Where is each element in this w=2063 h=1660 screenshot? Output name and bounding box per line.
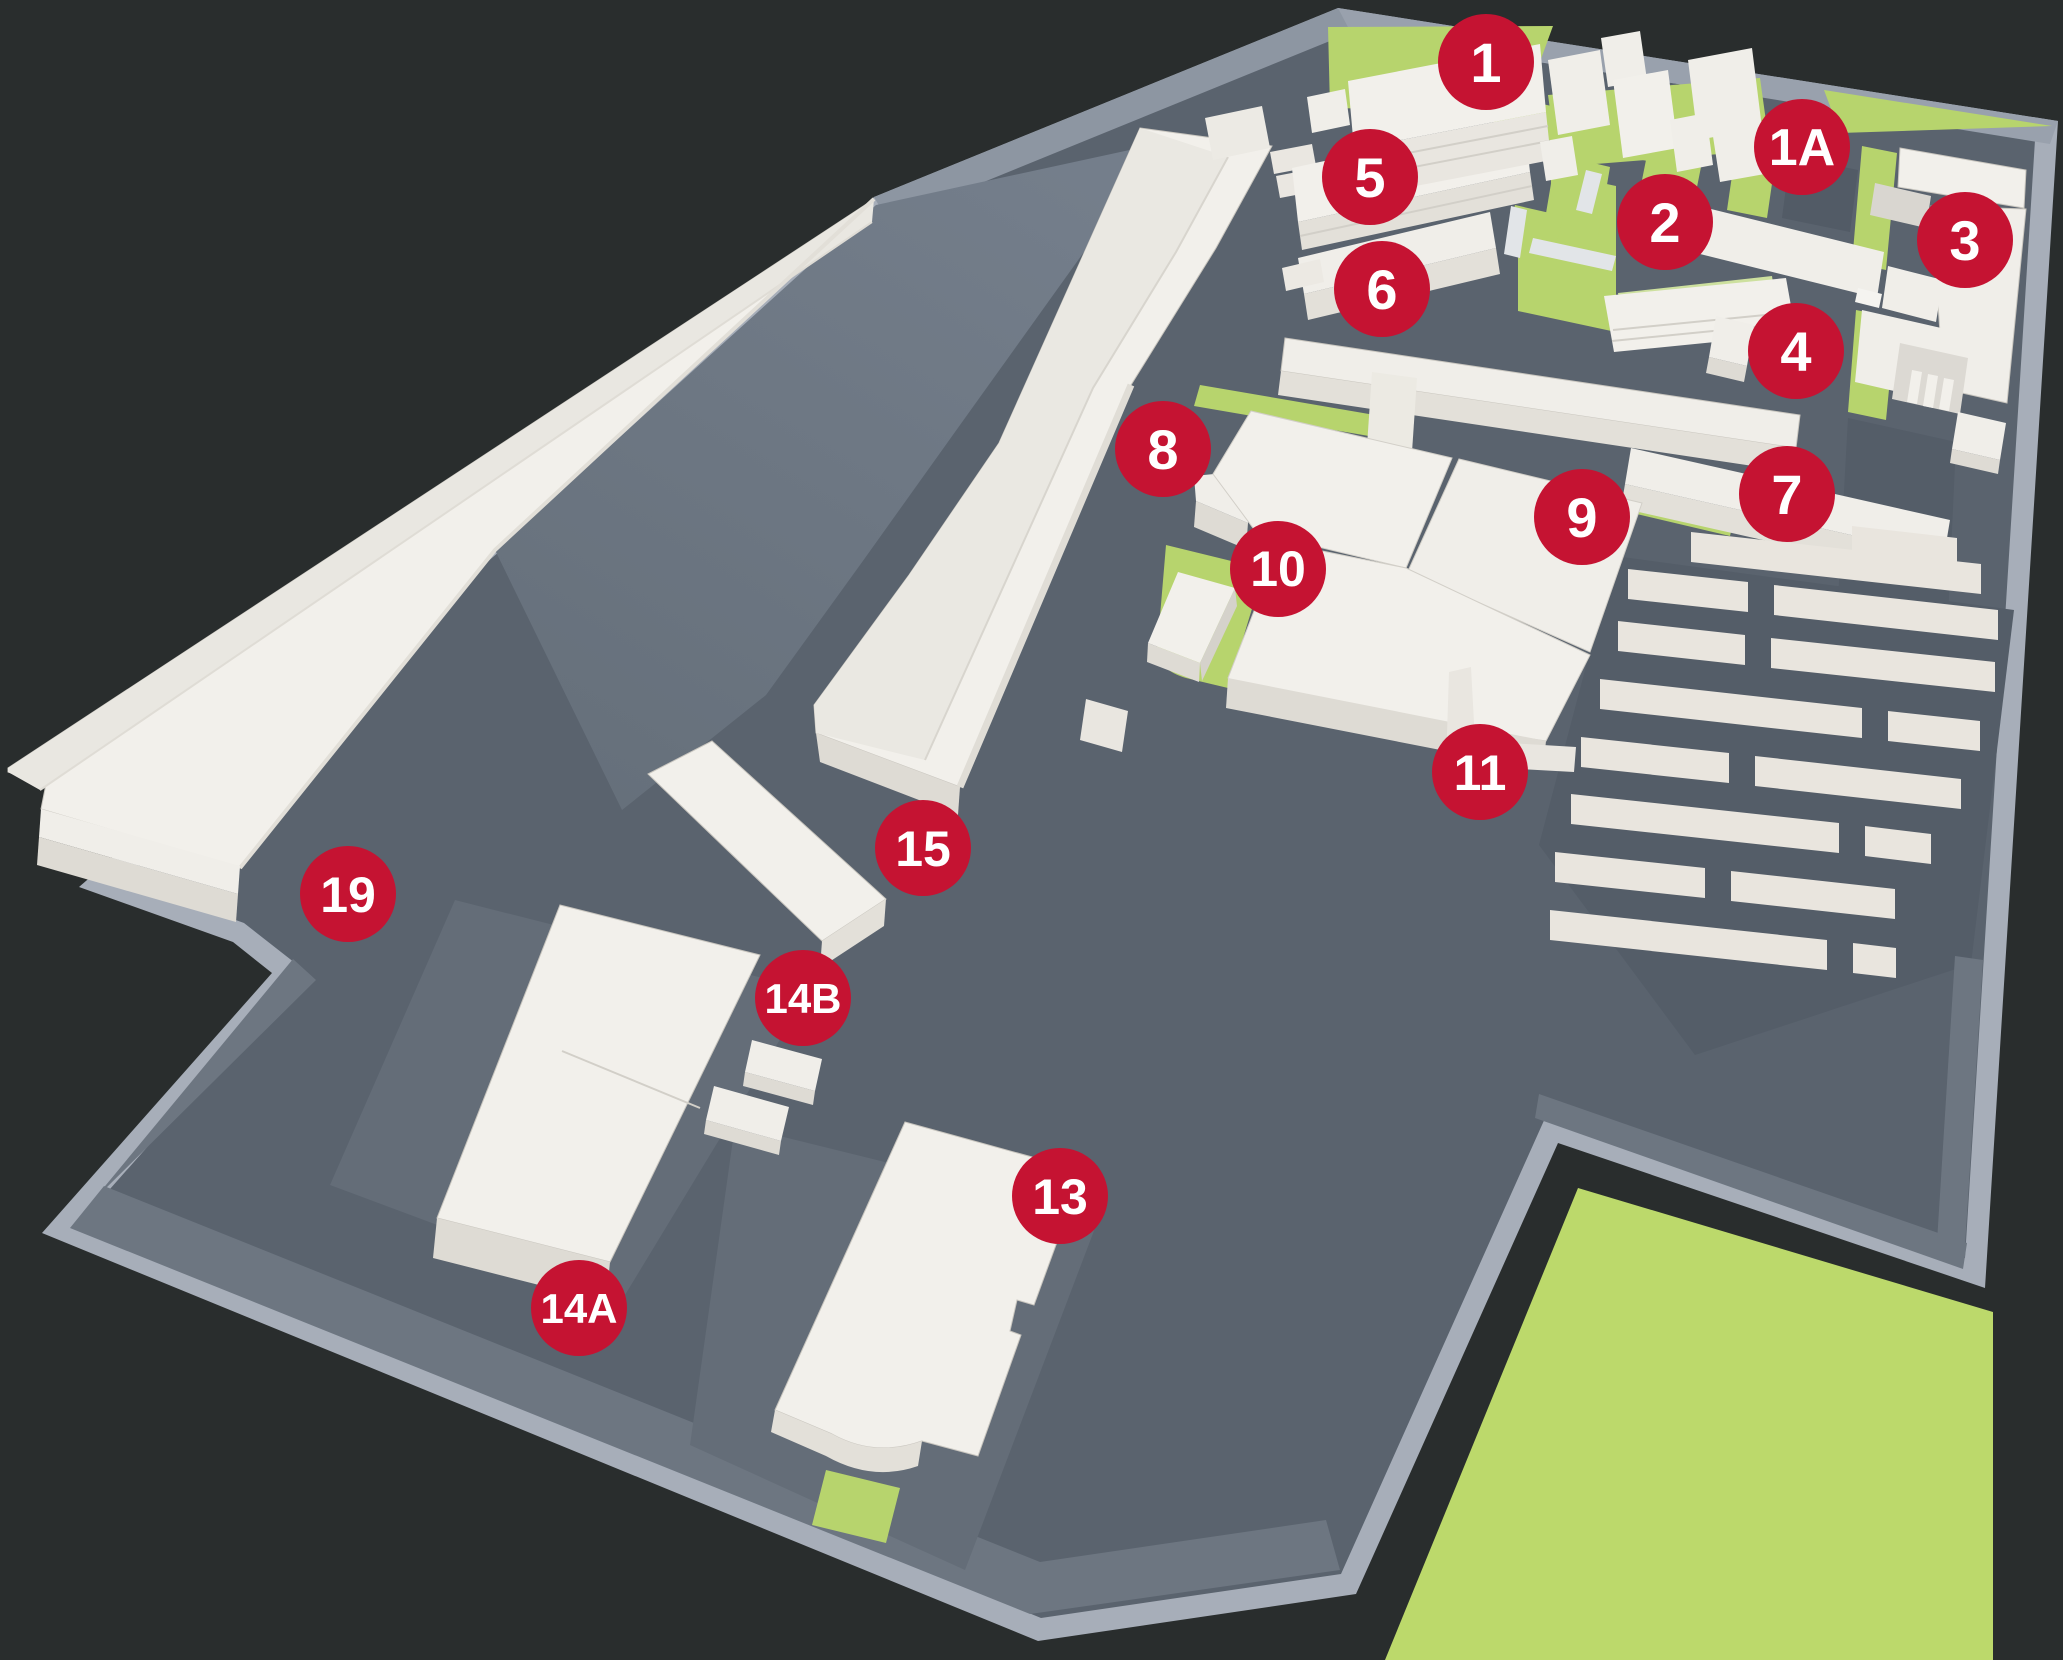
svg-text:10: 10 [1250, 541, 1306, 597]
svg-text:4: 4 [1780, 320, 1811, 383]
svg-text:14A: 14A [540, 1285, 617, 1332]
svg-text:14B: 14B [764, 975, 841, 1022]
svg-text:8: 8 [1147, 418, 1178, 481]
svg-text:13: 13 [1032, 1169, 1088, 1225]
svg-text:1A: 1A [1769, 119, 1835, 177]
svg-text:15: 15 [895, 821, 951, 877]
svg-text:6: 6 [1366, 258, 1397, 321]
svg-text:2: 2 [1649, 191, 1680, 254]
svg-text:3: 3 [1949, 209, 1980, 272]
svg-text:19: 19 [320, 867, 376, 923]
svg-text:9: 9 [1566, 486, 1597, 549]
svg-text:5: 5 [1354, 146, 1385, 209]
svg-text:11: 11 [1454, 745, 1507, 801]
svg-text:1: 1 [1470, 31, 1501, 94]
svg-text:7: 7 [1771, 463, 1802, 526]
